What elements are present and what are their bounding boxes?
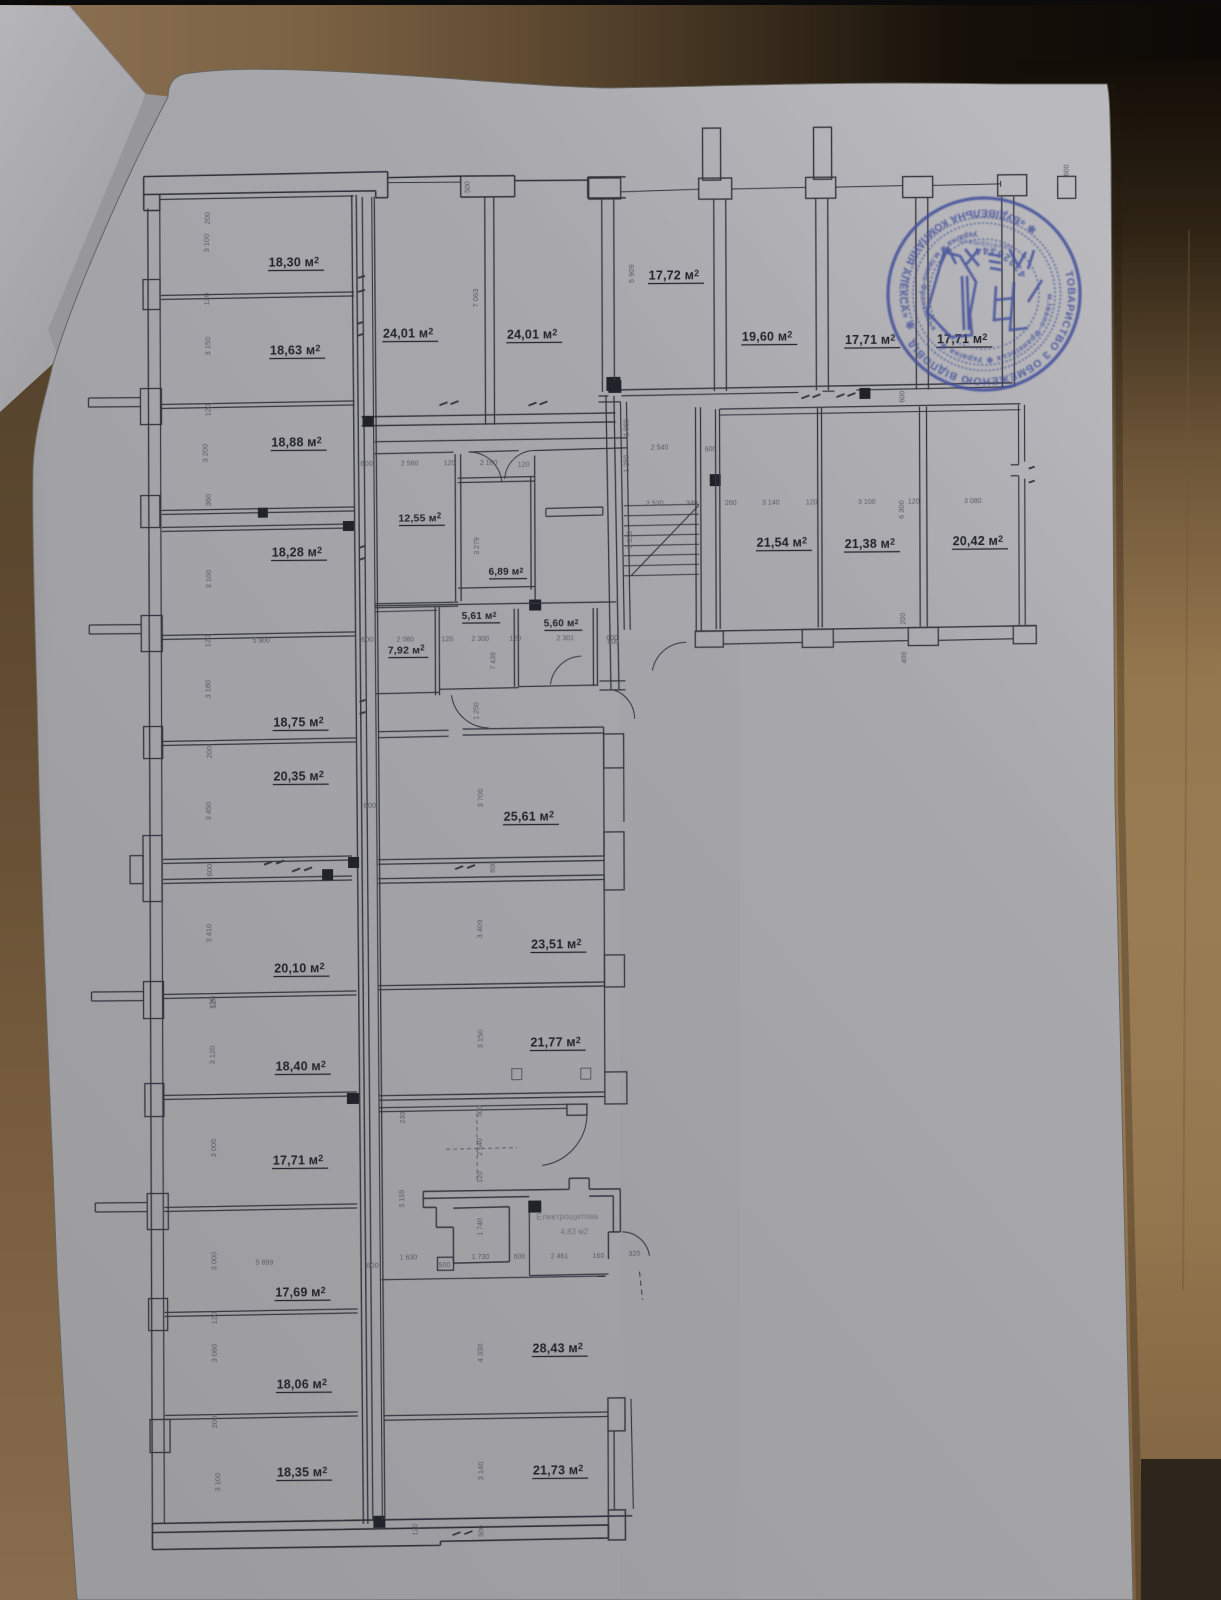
svg-text:3 100: 3 100 xyxy=(204,570,213,589)
svg-text:1 250: 1 250 xyxy=(624,455,631,473)
svg-text:1 630: 1 630 xyxy=(400,1254,418,1261)
svg-text:3 140: 3 140 xyxy=(762,500,780,507)
svg-text:1 730: 1 730 xyxy=(472,1254,490,1261)
svg-text:500: 500 xyxy=(478,1525,485,1537)
svg-text:500: 500 xyxy=(439,1262,451,1269)
svg-text:17,69 м2: 17,69 м2 xyxy=(275,1285,326,1300)
svg-text:17,71 м2: 17,71 м2 xyxy=(273,1153,324,1168)
svg-text:21,73 м2: 21,73 м2 xyxy=(533,1463,584,1478)
svg-text:3 100: 3 100 xyxy=(213,1473,222,1492)
svg-text:120: 120 xyxy=(518,462,530,469)
svg-text:120: 120 xyxy=(203,404,212,417)
svg-text:500: 500 xyxy=(465,181,472,193)
svg-text:120: 120 xyxy=(202,293,211,306)
svg-text:200: 200 xyxy=(203,212,212,225)
svg-text:340: 340 xyxy=(686,500,698,507)
svg-text:500: 500 xyxy=(477,1105,484,1117)
svg-text:600: 600 xyxy=(364,801,377,810)
svg-text:21,54 м2: 21,54 м2 xyxy=(757,535,808,550)
svg-text:4,83 м2: 4,83 м2 xyxy=(560,1227,588,1236)
svg-text:24,01 м2: 24,01 м2 xyxy=(507,327,558,342)
svg-text:23,51 м2: 23,51 м2 xyxy=(531,937,582,952)
svg-text:600: 600 xyxy=(607,639,619,646)
svg-text:21,38 м2: 21,38 м2 xyxy=(845,537,896,552)
svg-text:3 350: 3 350 xyxy=(627,531,634,549)
svg-text:6,89 м2: 6,89 м2 xyxy=(489,567,524,578)
svg-text:17,72 м2: 17,72 м2 xyxy=(649,268,700,283)
svg-text:18,06 м2: 18,06 м2 xyxy=(277,1377,328,1392)
svg-text:1 250: 1 250 xyxy=(473,702,480,720)
svg-text:3 140: 3 140 xyxy=(476,1462,485,1481)
svg-text:600: 600 xyxy=(490,861,497,873)
svg-text:3 080: 3 080 xyxy=(964,498,982,505)
svg-text:600: 600 xyxy=(1064,164,1071,176)
svg-text:2 461: 2 461 xyxy=(551,1253,569,1260)
svg-text:2 560: 2 560 xyxy=(401,460,419,467)
svg-text:19,60 м2: 19,60 м2 xyxy=(742,329,793,344)
svg-text:3 120: 3 120 xyxy=(208,1046,217,1065)
svg-text:3 180: 3 180 xyxy=(203,680,212,699)
svg-text:3 150: 3 150 xyxy=(476,1030,485,1049)
svg-text:120: 120 xyxy=(412,1523,419,1535)
svg-text:7 063: 7 063 xyxy=(471,289,480,308)
svg-text:5,60 м2: 5,60 м2 xyxy=(544,618,579,629)
svg-text:2 300: 2 300 xyxy=(471,636,489,643)
svg-text:120: 120 xyxy=(441,636,453,643)
svg-text:600: 600 xyxy=(361,635,374,644)
svg-text:2 301: 2 301 xyxy=(556,635,574,642)
svg-text:120: 120 xyxy=(208,997,217,1010)
svg-text:2 080: 2 080 xyxy=(396,636,414,643)
svg-text:5 909: 5 909 xyxy=(627,264,636,283)
svg-text:200: 200 xyxy=(205,746,214,759)
svg-text:18,28 м2: 18,28 м2 xyxy=(272,545,323,560)
svg-text:120: 120 xyxy=(444,460,456,467)
svg-text:18,88 м2: 18,88 м2 xyxy=(271,435,322,450)
svg-text:18,75 м2: 18,75 м2 xyxy=(273,715,324,730)
svg-text:12,55 м2: 12,55 м2 xyxy=(398,511,441,524)
svg-text:200: 200 xyxy=(900,613,907,625)
svg-text:3 060: 3 060 xyxy=(210,1344,219,1363)
svg-text:600: 600 xyxy=(514,1254,526,1261)
svg-text:120: 120 xyxy=(477,1171,484,1183)
svg-text:3 000: 3 000 xyxy=(209,1252,218,1271)
svg-text:5 159: 5 159 xyxy=(399,1190,406,1208)
svg-text:400: 400 xyxy=(901,652,908,664)
svg-text:3 279: 3 279 xyxy=(474,537,481,555)
svg-text:18,30 м2: 18,30 м2 xyxy=(269,255,320,270)
svg-text:120: 120 xyxy=(908,498,920,505)
svg-text:2 540: 2 540 xyxy=(477,1138,484,1156)
svg-text:3 100: 3 100 xyxy=(858,499,876,506)
svg-text:3 000: 3 000 xyxy=(209,1139,218,1158)
svg-text:120: 120 xyxy=(806,499,818,506)
svg-text:7,92 м2: 7,92 м2 xyxy=(388,644,425,657)
svg-text:3 700: 3 700 xyxy=(476,789,485,808)
svg-text:1 060: 1 060 xyxy=(623,419,630,437)
svg-text:120: 120 xyxy=(210,1312,219,1325)
svg-text:120: 120 xyxy=(203,635,212,648)
svg-text:360: 360 xyxy=(204,494,213,507)
svg-text:3 100: 3 100 xyxy=(202,234,211,253)
svg-text:Електрощитова: Електрощитова xyxy=(536,1211,598,1221)
svg-text:28,43 м2: 28,43 м2 xyxy=(532,1341,583,1356)
svg-text:25,61 м2: 25,61 м2 xyxy=(504,809,555,824)
svg-text:2 520: 2 520 xyxy=(646,500,664,507)
svg-text:600: 600 xyxy=(366,1261,379,1270)
svg-text:600: 600 xyxy=(705,446,717,453)
svg-text:200: 200 xyxy=(210,1416,219,1429)
svg-text:600: 600 xyxy=(899,391,906,403)
svg-text:20,42 м2: 20,42 м2 xyxy=(953,534,1004,549)
svg-text:5,61 м2: 5,61 м2 xyxy=(462,611,497,622)
svg-text:3 150: 3 150 xyxy=(203,337,212,356)
svg-text:260: 260 xyxy=(725,500,737,507)
svg-text:600: 600 xyxy=(205,864,214,877)
svg-text:18,63 м2: 18,63 м2 xyxy=(270,343,321,358)
svg-text:160: 160 xyxy=(593,1253,605,1260)
svg-text:5 900: 5 900 xyxy=(252,638,270,645)
svg-text:3 200: 3 200 xyxy=(201,444,210,463)
svg-text:1 740: 1 740 xyxy=(477,1218,484,1236)
svg-text:2 100: 2 100 xyxy=(480,460,498,467)
svg-text:600: 600 xyxy=(360,459,373,468)
svg-text:4 330: 4 330 xyxy=(476,1344,485,1363)
svg-text:6 300: 6 300 xyxy=(897,500,906,519)
svg-text:320: 320 xyxy=(629,1251,641,1258)
svg-text:18,40 м2: 18,40 м2 xyxy=(275,1059,326,1074)
svg-text:24,01 м2: 24,01 м2 xyxy=(383,326,434,341)
svg-text:5 899: 5 899 xyxy=(256,1260,274,1267)
svg-text:17,71 м2: 17,71 м2 xyxy=(845,333,896,348)
svg-text:21,77 м2: 21,77 м2 xyxy=(530,1035,581,1050)
svg-text:18,35 м2: 18,35 м2 xyxy=(277,1465,328,1480)
svg-text:7 439: 7 439 xyxy=(490,652,497,670)
svg-text:3 410: 3 410 xyxy=(204,924,213,943)
svg-text:120: 120 xyxy=(509,636,521,643)
svg-text:2 540: 2 540 xyxy=(651,444,669,451)
svg-text:3 450: 3 450 xyxy=(204,802,213,821)
svg-text:20,35 м2: 20,35 м2 xyxy=(273,769,324,784)
svg-text:230: 230 xyxy=(400,1112,407,1124)
svg-text:3 409: 3 409 xyxy=(475,920,484,939)
svg-text:20,10 м2: 20,10 м2 xyxy=(274,961,325,976)
